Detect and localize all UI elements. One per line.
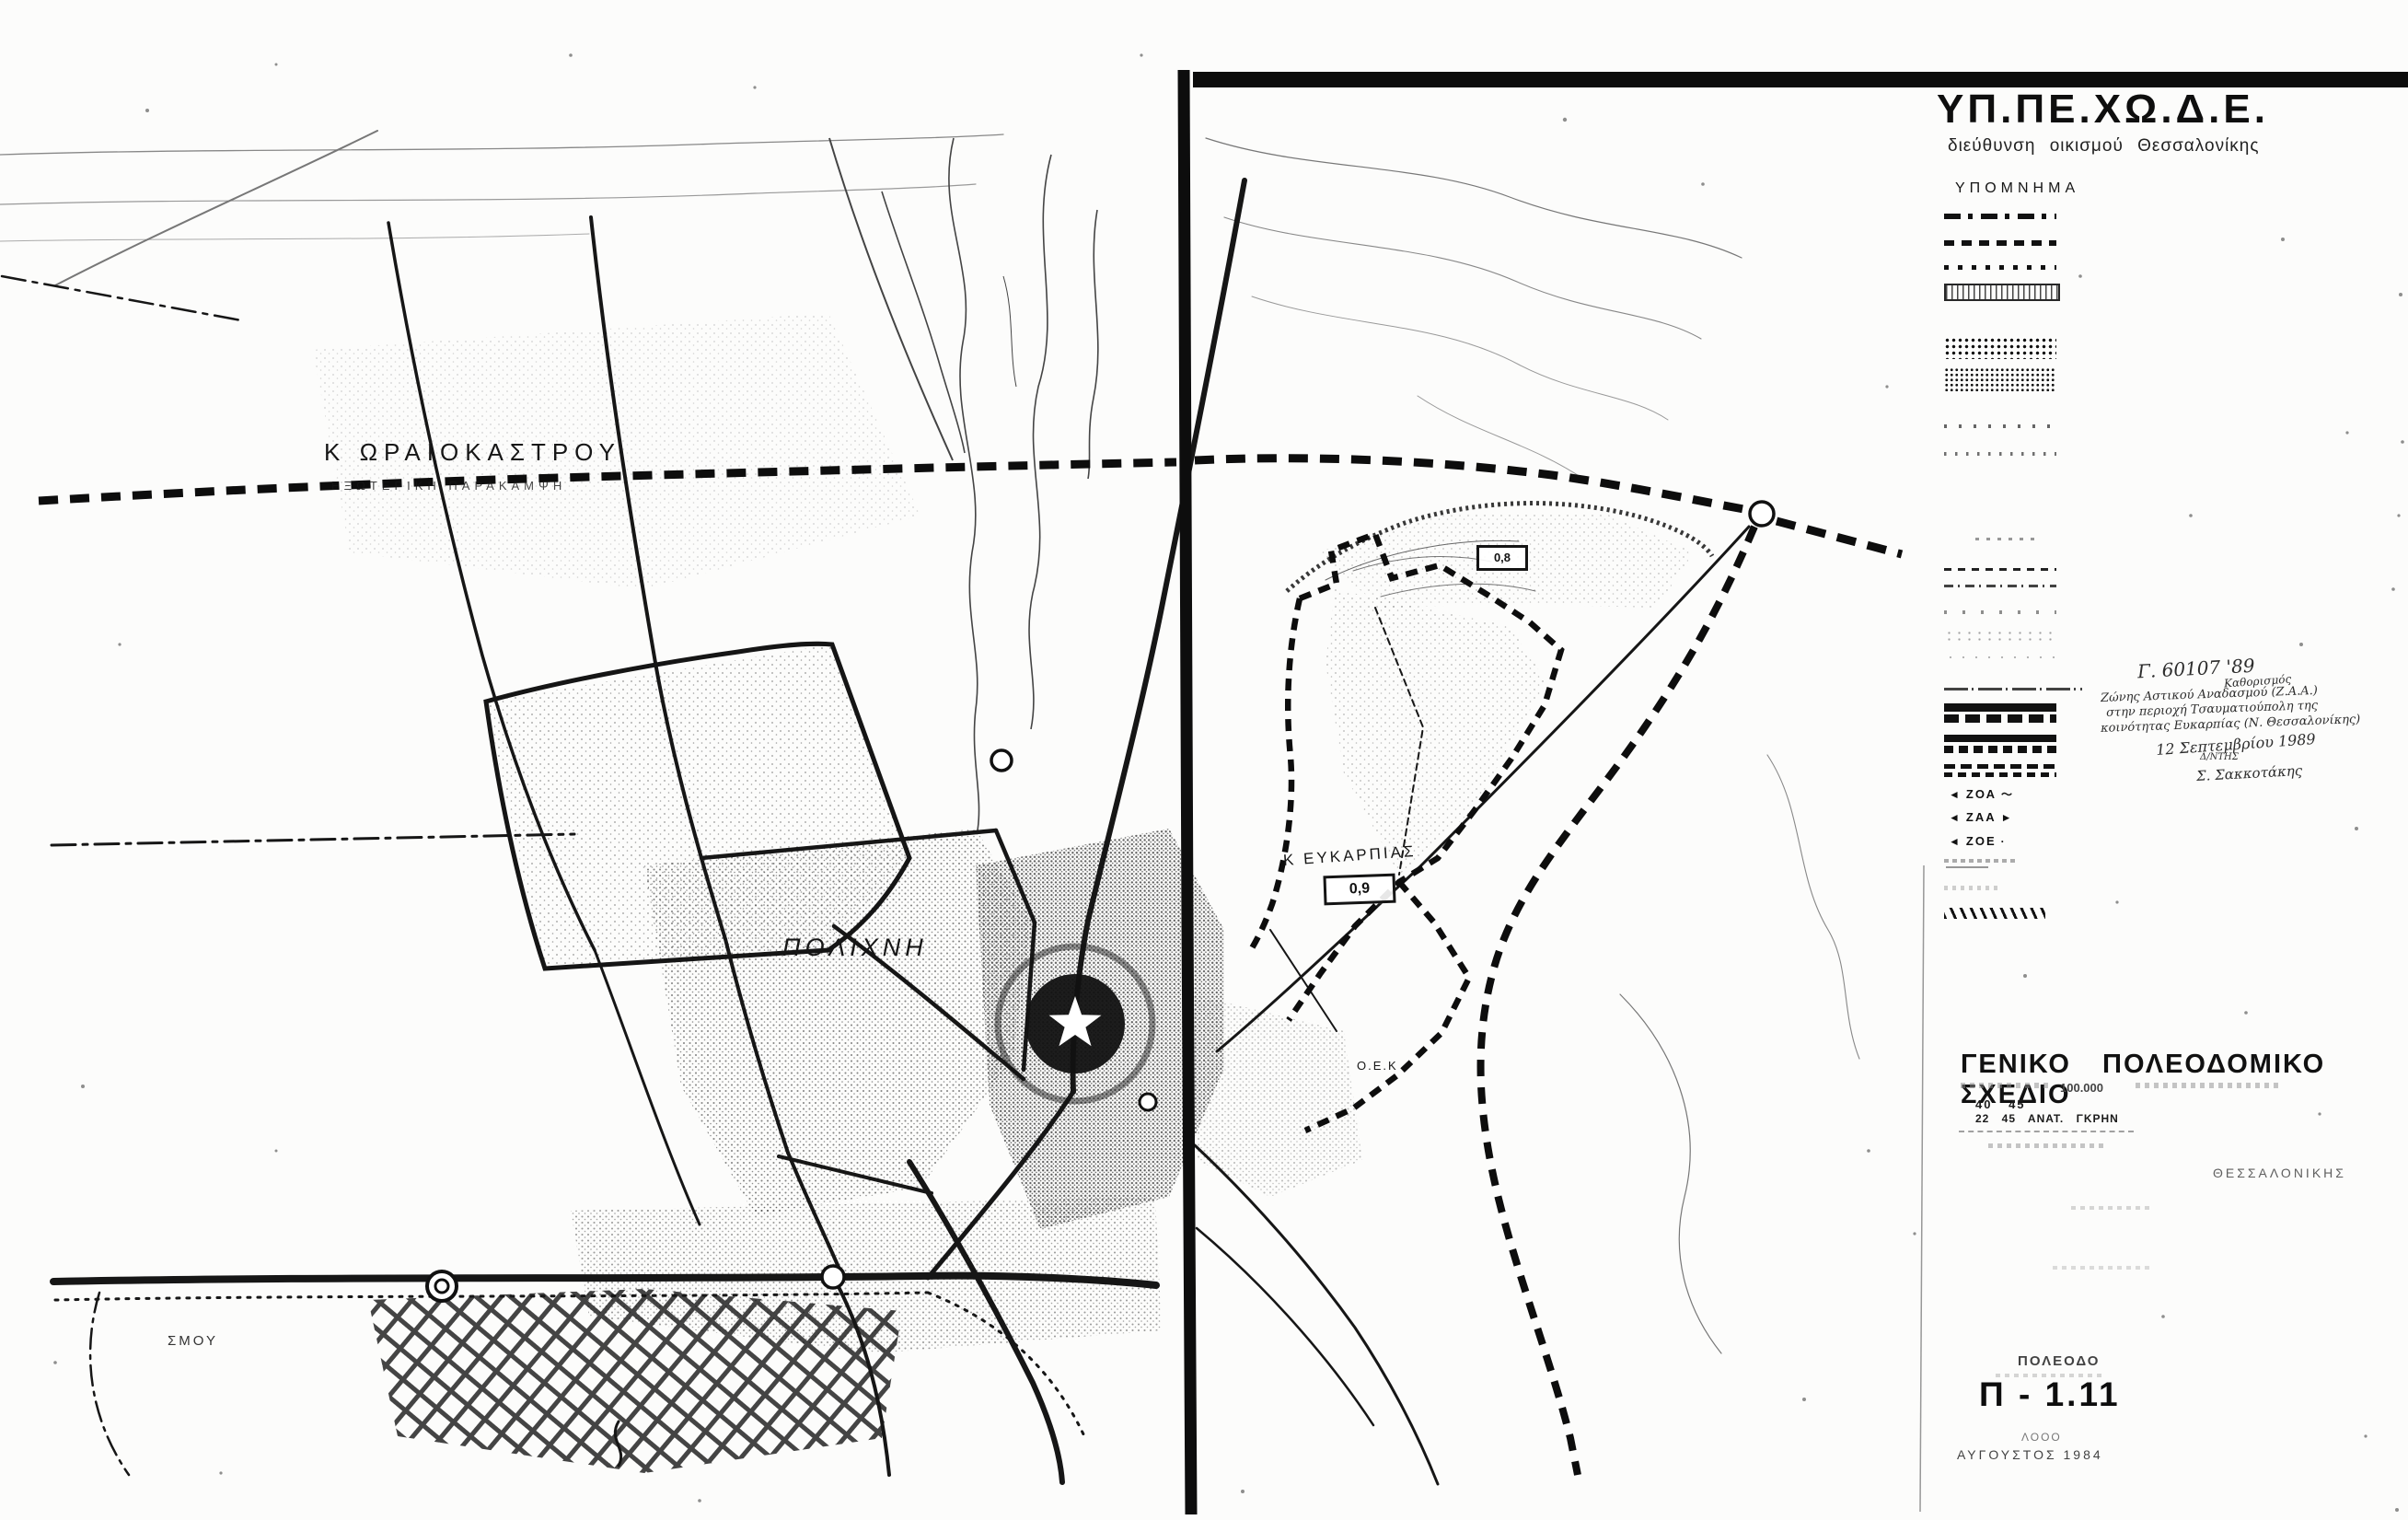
arrow-icon: ◄ [1949, 788, 1962, 801]
legend-swatch-bold-dash-dot [1944, 214, 2056, 219]
rule-line [1959, 1131, 2134, 1132]
legend-item-bold-dashed [1944, 240, 2165, 264]
sheet-note: ΛΟΟΟ [2021, 1431, 2062, 1444]
arrow-icon: ► [2001, 811, 2014, 824]
sheet-number: Π - 1.11 [1979, 1375, 2121, 1414]
legend-item-ζαα: ◄ΖΑΑ► [1944, 810, 2165, 834]
map-label-municipality-nw: Κ ΩΡΑΙΟΚΑΣΤΡΟΥ [324, 438, 621, 467]
legend-swatch-dash-dot-thin [1944, 585, 2056, 587]
faint-text [2071, 1206, 2154, 1210]
legend-item-dot-grid-fine [1944, 367, 2165, 391]
legend-swatch-speck-cluster [1944, 630, 2056, 643]
sheet-series-label: ΠΟΛΕΟΔΟ [2018, 1353, 2100, 1369]
legend-item-fine-dots [1944, 452, 2165, 476]
legend-swatch-sparse-ticks [1944, 424, 2056, 428]
legend-item-solid-bar-over-squares [1944, 735, 2165, 759]
plan-region: ΘΕΣΣΑΛΟΝΙΚΗΣ [2213, 1166, 2346, 1180]
legend-title: ΥΠΟΜΝΗΜΑ [1955, 180, 2079, 197]
sheet-divider-line [1184, 70, 1191, 1514]
panel-separator-line [1920, 865, 1924, 1512]
legend-item-dash-dot-thin [1944, 585, 2165, 609]
legend-swatch-dot-grid-dense [1944, 337, 2056, 359]
plan-longitude: 22 45 ΑΝΑΤ. ΓΚΡΗΝ [1975, 1112, 2119, 1125]
legend-swatch-bold-dashed [1944, 240, 2056, 246]
legend-item-dot-grid-dense [1944, 337, 2165, 361]
legend-swatch-diagonal-hatch [1944, 908, 2045, 919]
legend-swatch-micro-dashes [1975, 538, 2034, 540]
legend-swatch-fine-dots [1944, 452, 2056, 456]
faint-text [1988, 1143, 2108, 1148]
legend-swatch-dot-grid-fine [1944, 367, 2056, 391]
map-label-polichni: ΠΟΛΙΧΝΗ [782, 934, 928, 962]
map-ratio-box-eukarpia: 0,9 [1323, 874, 1395, 906]
sheet-date: ΑΥΓΟΥΣΤΟΣ 1984 [1957, 1447, 2103, 1462]
plan-latitude: 40 45 [1975, 1097, 2026, 1111]
agency-subtitle: διεύθυνση οικισμού Θεσσαλονίκης [1948, 136, 2260, 157]
map-label-partial-sw: ΣΜΟΥ [168, 1333, 218, 1349]
map-ratio-box-hill: 0,8 [1476, 545, 1528, 571]
legend-swatch-speck-row [1944, 654, 2056, 661]
map-label-oek: Ο.Ε.Κ [1357, 1059, 1398, 1073]
map-label-ring-road: ΕΞΩΤΕΡΙΚΗ ΠΑΡΑΚΑΜΨΗ [331, 479, 566, 493]
legend-item-hatched-bar-outline [1944, 284, 2165, 307]
legend-swatch-long-dash-dot [1944, 688, 2082, 690]
legend-swatch-solid-bar-over-squares [1944, 735, 2056, 753]
scanned-map-sheet: Κ ΩΡΑΙΟΚΑΣΤΡΟΥ ΕΞΩΤΕΡΙΚΗ ΠΑΡΑΚΑΜΨΗ ΠΟΛΙΧ… [0, 0, 2408, 1520]
legend-item-diagonal-hatch [1944, 908, 2165, 932]
legend-item-underlined-note [1944, 859, 2165, 883]
plan-scale-figure: 100.000 [2060, 1081, 2103, 1095]
legend-item-sparse-ticks [1944, 424, 2165, 448]
annotation-role: Δ/ΝΤΗΣ [2200, 752, 2239, 762]
faint-text [2136, 1083, 2283, 1088]
agency-title: ΥΠ.ΠΕ.ΧΩ.Δ.Ε. [1937, 87, 2269, 133]
legend-swatch-dashed-thin [1944, 568, 2056, 571]
legend-marker-label: ΖΑΑ [1966, 810, 1997, 824]
plan-title: ΓΕΝΙΚΟ ΠΟΛΕΟΔΟΜΙΚΟ ΣΧΕΔΙΟ [1961, 1050, 2408, 1110]
legend-item-faint-note [1944, 886, 2165, 910]
legend-swatch-round-dots [1944, 265, 2056, 270]
legend-swatch-hatched-bar-outline [1944, 284, 2060, 301]
arrow-icon: ◄ [1949, 835, 1962, 848]
legend-item-ζοε: ◄ΖΟΕ· [1944, 834, 2165, 858]
arrow-icon: · [2001, 835, 2007, 848]
legend-item-speck-cluster [1944, 630, 2165, 654]
arrow-icon: ◄ [1949, 811, 1962, 824]
arrow-icon: ～ [2001, 788, 2014, 801]
legend-item-micro-dashes [1944, 538, 2165, 562]
legend-marker-label: ΖΟΕ [1966, 834, 1997, 848]
legend-swatch-double-dash-rows [1944, 764, 2056, 777]
top-frame-bar [1193, 72, 2408, 87]
legend-swatch-faint-note [1944, 886, 1999, 890]
legend-swatch-sparse-dots [1944, 610, 2056, 614]
legend-swatch-underlined-note [1944, 859, 2056, 868]
faint-text [2053, 1266, 2154, 1270]
legend-marker-label: ΖΟΑ [1966, 787, 1997, 801]
legend-item-speck-row [1944, 654, 2165, 678]
faint-text [1961, 1083, 2049, 1088]
legend-item-ζοα: ◄ΖΟΑ～ [1944, 786, 2165, 810]
legend-item-double-dash-rows [1944, 764, 2165, 788]
legend-item-bold-dash-dot [1944, 214, 2165, 238]
legend-swatch-solid-bar-over-blocks [1944, 703, 2056, 723]
